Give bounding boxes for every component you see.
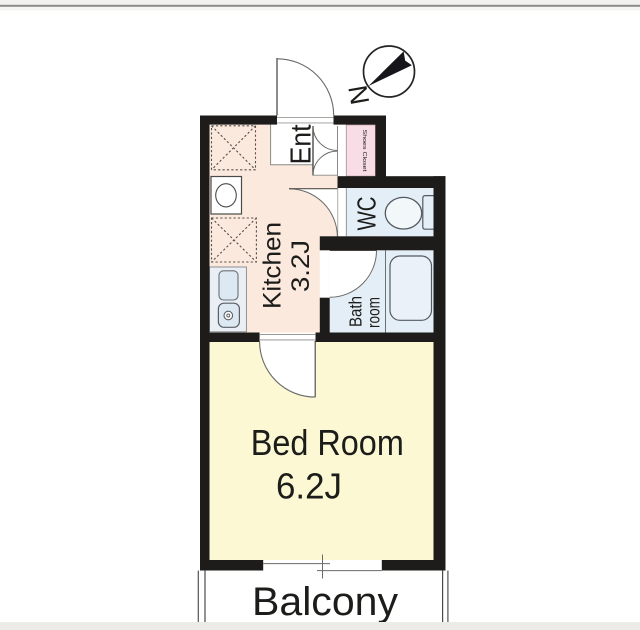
- svg-text:Balcony: Balcony: [252, 580, 398, 624]
- svg-text:Kitchen: Kitchen: [260, 222, 287, 309]
- svg-text:Shoes Closet: Shoes Closet: [361, 130, 367, 172]
- svg-text:room: room: [364, 297, 384, 328]
- svg-text:6.2J: 6.2J: [276, 466, 342, 507]
- svg-text:3.2J: 3.2J: [288, 240, 315, 292]
- svg-text:WC: WC: [352, 197, 382, 231]
- svg-text:Bed Room: Bed Room: [251, 422, 404, 463]
- svg-text:Ent: Ent: [286, 125, 318, 165]
- svg-text:Bath: Bath: [346, 296, 366, 327]
